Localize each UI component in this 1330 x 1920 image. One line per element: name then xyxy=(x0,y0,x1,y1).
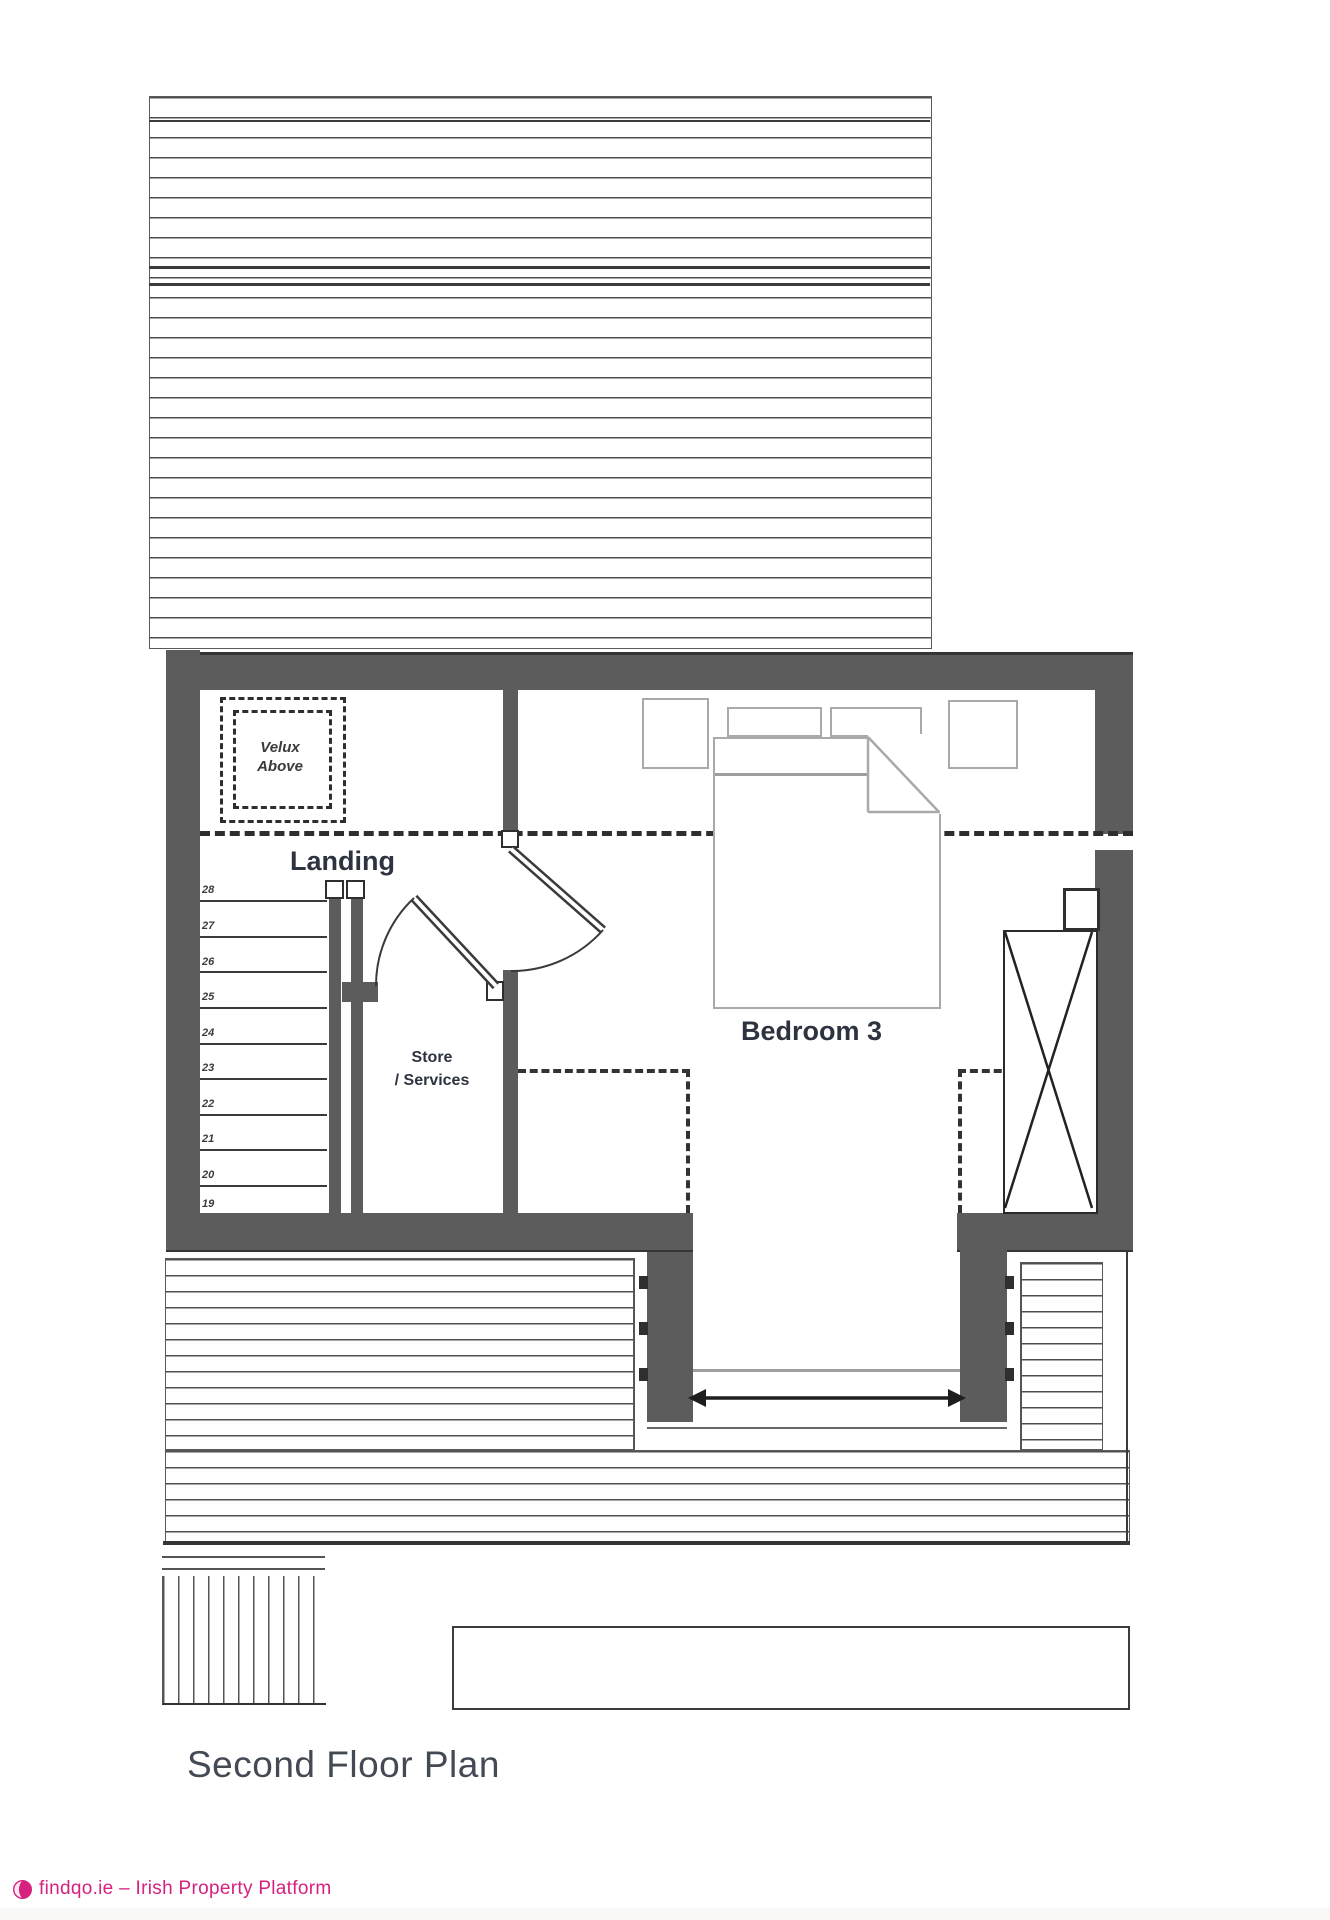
bottom-wall-edge xyxy=(166,1250,693,1252)
store-door-leaf-core xyxy=(414,898,496,986)
velux-label: Velux Above xyxy=(230,738,330,776)
stair-number: 27 xyxy=(202,920,232,932)
deck-line-2 xyxy=(162,1568,325,1570)
stair-tread xyxy=(200,971,327,973)
floor-plan-sheet: Velux Above 28 27 26 25 24 23 22 21 20 1… xyxy=(0,0,1330,1920)
store-door-jamb xyxy=(486,981,504,1001)
stair-number: 26 xyxy=(202,956,232,968)
stair-newel-post xyxy=(325,880,344,899)
left-wall xyxy=(166,650,200,1250)
stair-number: 23 xyxy=(202,1062,232,1074)
stair-tread xyxy=(200,1078,327,1080)
pier-tick xyxy=(1005,1368,1014,1381)
deck-line-1 xyxy=(162,1556,325,1558)
store-door-leaf xyxy=(414,898,496,986)
roof-hatch-lower-full xyxy=(165,1450,1130,1545)
roof-hatch-lower-right xyxy=(1020,1262,1103,1450)
landing-door-swing-arc xyxy=(511,930,603,971)
lower-roof-bottom-edge xyxy=(163,1541,1130,1545)
dormer-pier-right xyxy=(960,1250,1007,1422)
roof-eave-line xyxy=(149,120,930,122)
headroom-dashed-left-h xyxy=(518,1069,690,1073)
stair-number: 22 xyxy=(202,1098,232,1110)
bed-sheet-line xyxy=(715,773,870,776)
store-door-swing-arc xyxy=(376,898,414,986)
stair-number: 28 xyxy=(202,884,232,896)
store-label: Store / Services xyxy=(362,1046,502,1092)
right-outer-line xyxy=(1126,1250,1128,1545)
stair-number: 20 xyxy=(202,1169,232,1181)
wardrobe-xbox xyxy=(1003,930,1098,1214)
roof-ridge-line-1 xyxy=(149,266,930,269)
velux-line1: Velux xyxy=(260,739,299,756)
bedside-table-left xyxy=(642,698,709,769)
stair-number: 21 xyxy=(202,1133,232,1145)
pier-tick xyxy=(1005,1322,1014,1335)
footer-brand: findqo.ie – Irish Property Platform xyxy=(13,1876,331,1902)
footer-strip xyxy=(0,1908,1330,1920)
pier-tick xyxy=(1005,1276,1014,1289)
landing-label: Landing xyxy=(290,846,395,877)
stair-newel-post xyxy=(346,880,365,899)
stair-tread xyxy=(200,1114,327,1116)
bottom-wall-left xyxy=(166,1213,693,1252)
velux-line2: Above xyxy=(257,758,303,775)
landing-door-leaf xyxy=(511,849,603,930)
dormer-pier-left xyxy=(647,1252,693,1422)
store-label-line1: Store xyxy=(412,1049,453,1066)
stair-tread xyxy=(200,1149,327,1151)
lower-outline-rect xyxy=(452,1626,1130,1710)
dormer-sill-line xyxy=(693,1369,960,1372)
bottom-wall-right xyxy=(957,1213,1133,1252)
headroom-dashed-right-v xyxy=(958,1069,962,1213)
stair-tread xyxy=(200,1043,327,1045)
stair-number: 25 xyxy=(202,991,232,1003)
headroom-dashed-left-v xyxy=(686,1069,690,1213)
top-wall xyxy=(166,655,1133,690)
landing-partition-wall xyxy=(503,690,518,830)
wall-duct-box xyxy=(1063,888,1100,931)
dormer-under-line xyxy=(647,1427,1007,1429)
bedroom-label: Bedroom 3 xyxy=(741,1016,882,1047)
landing-door-leaf-core xyxy=(511,849,603,930)
stair-rail-left xyxy=(329,899,341,1213)
pier-tick xyxy=(639,1368,648,1381)
pillow-right xyxy=(830,707,922,737)
pier-tick xyxy=(639,1276,648,1289)
ceiling-height-dashed-line xyxy=(200,831,1133,836)
pier-tick xyxy=(639,1322,648,1335)
stair-number: 19 xyxy=(202,1198,232,1210)
bed xyxy=(713,737,941,1009)
lower-vertical-hatch-block xyxy=(162,1576,326,1705)
stair-tread xyxy=(200,900,327,902)
stair-tread xyxy=(200,1007,327,1009)
stair-tread xyxy=(200,936,327,938)
globe-icon xyxy=(13,1880,32,1899)
right-wall xyxy=(1095,690,1133,1250)
landing-door-jamb xyxy=(501,830,519,848)
store-label-line2: / Services xyxy=(395,1072,470,1089)
pillow-left xyxy=(727,707,822,737)
footer-text: findqo.ie – Irish Property Platform xyxy=(39,1878,331,1900)
stair-tread xyxy=(200,1185,327,1187)
right-wall-break xyxy=(1095,834,1133,850)
roof-ridge-line-2 xyxy=(149,283,930,286)
roof-hatch-lower-left xyxy=(165,1258,635,1450)
stair-number: 24 xyxy=(202,1027,232,1039)
plan-title: Second Floor Plan xyxy=(187,1744,500,1786)
store-wall xyxy=(503,970,518,1213)
roof-hatch-top xyxy=(149,96,932,649)
bedside-table-right xyxy=(948,700,1018,769)
